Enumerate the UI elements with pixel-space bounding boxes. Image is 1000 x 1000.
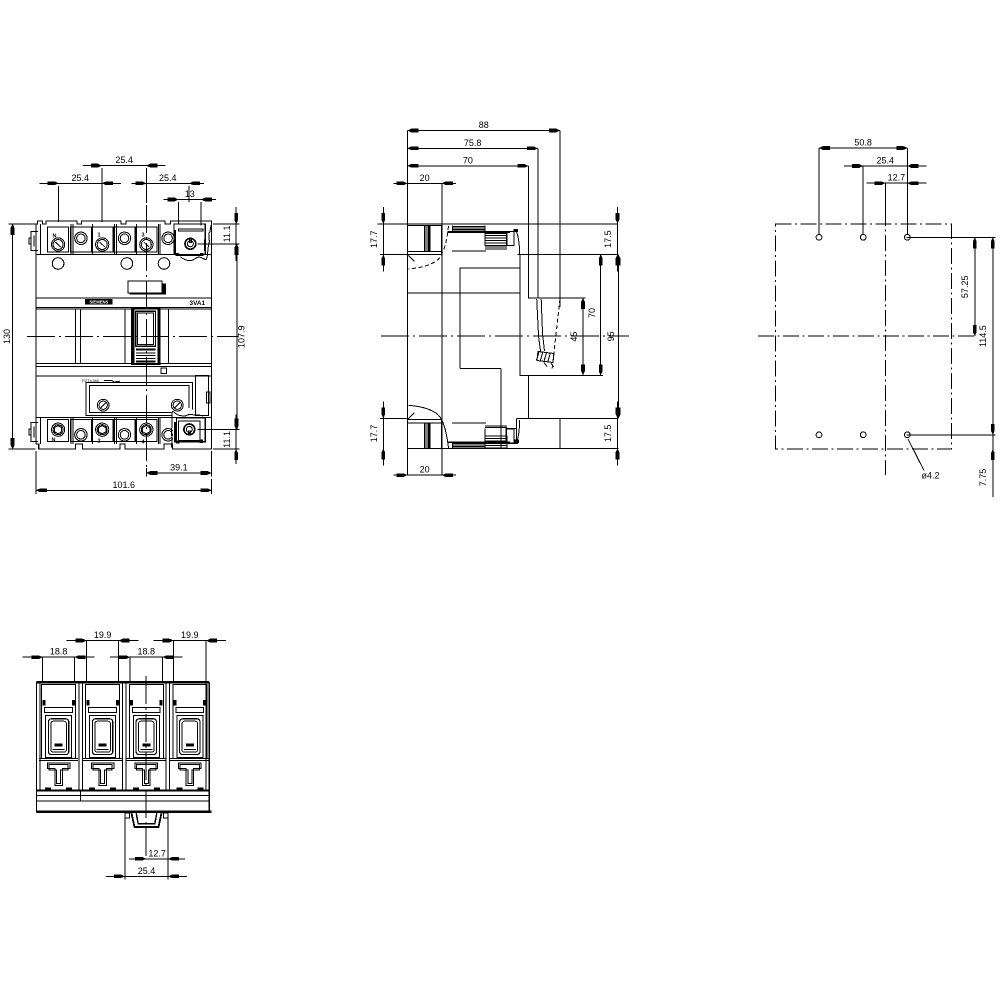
svg-text:101.6: 101.6 (113, 480, 136, 490)
svg-text:ø4.2: ø4.2 (922, 471, 940, 481)
svg-text:130: 130 (2, 329, 12, 344)
svg-text:3VA1: 3VA1 (190, 300, 206, 307)
svg-text:11.1: 11.1 (222, 225, 232, 242)
svg-text:2: 2 (97, 439, 100, 445)
svg-text:75.8: 75.8 (464, 138, 482, 148)
svg-text:SIEMENS: SIEMENS (89, 300, 108, 305)
svg-text:7.75: 7.75 (978, 469, 988, 487)
svg-text:57.25: 57.25 (960, 276, 970, 299)
svg-text:107.9: 107.9 (237, 326, 247, 349)
svg-text:50.8: 50.8 (854, 138, 872, 148)
svg-text:70: 70 (463, 155, 473, 165)
svg-text:19.9: 19.9 (181, 630, 199, 640)
svg-text:25.4: 25.4 (115, 155, 133, 165)
svg-text:114.5: 114.5 (978, 325, 988, 347)
svg-text:88: 88 (479, 120, 489, 130)
svg-text:N: N (52, 438, 56, 444)
svg-text:17.5: 17.5 (603, 425, 613, 443)
svg-text:19.9: 19.9 (94, 630, 112, 640)
svg-text:39.1: 39.1 (170, 462, 188, 472)
svg-text:1: 1 (97, 233, 100, 239)
svg-text:18.8: 18.8 (138, 647, 156, 657)
svg-text:95: 95 (606, 331, 616, 341)
svg-text:17.5: 17.5 (603, 230, 613, 248)
svg-text:3: 3 (141, 233, 144, 239)
svg-text:70: 70 (587, 308, 597, 318)
svg-text:13: 13 (185, 189, 195, 199)
svg-text:N: N (53, 234, 57, 240)
svg-text:20: 20 (420, 173, 430, 183)
svg-text:11.1: 11.1 (222, 431, 232, 448)
svg-text:25.4: 25.4 (159, 173, 177, 183)
svg-text:17.7: 17.7 (369, 230, 379, 248)
svg-text:25.4: 25.4 (877, 156, 895, 166)
svg-text:17.7: 17.7 (369, 425, 379, 443)
svg-text:20: 20 (420, 465, 430, 475)
svg-text:12.7: 12.7 (148, 848, 166, 858)
svg-text:12.7: 12.7 (888, 173, 906, 183)
svg-text:45: 45 (569, 332, 579, 342)
svg-text:18.8: 18.8 (50, 647, 68, 657)
svg-text:25.4: 25.4 (72, 173, 90, 183)
svg-text:25.4: 25.4 (138, 866, 156, 876)
